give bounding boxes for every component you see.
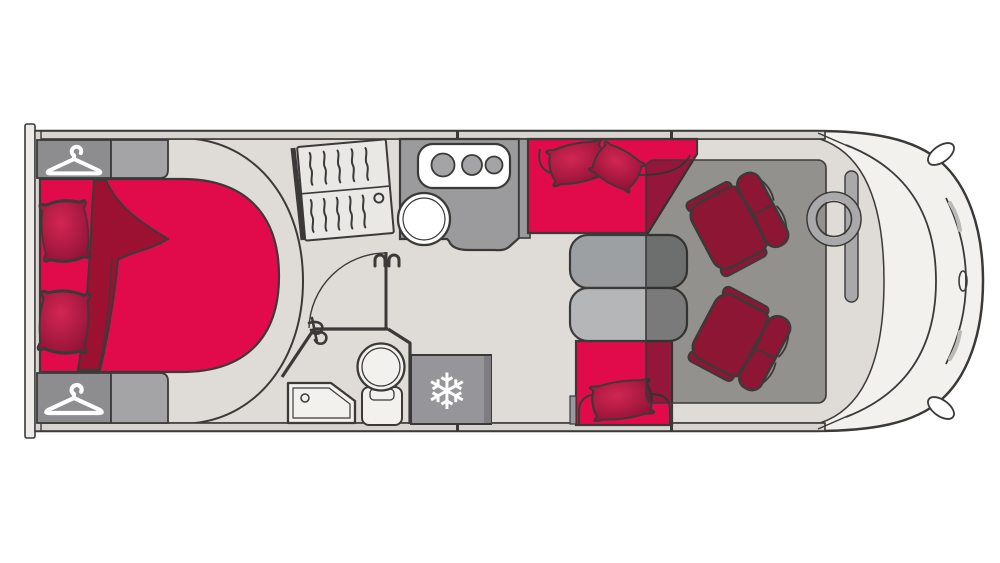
slatted-cabinet (293, 139, 394, 240)
burner-icon (432, 154, 455, 177)
fridge: ❄ (411, 355, 491, 424)
cabinet-bottom (111, 373, 168, 423)
toilet-base (362, 387, 402, 425)
floorplan-page: ❄ (0, 0, 1000, 563)
bed-pillow-2 (37, 289, 90, 354)
bench-end-panel (570, 396, 576, 424)
snowflake-icon: ❄ (426, 363, 468, 421)
floorplan-canvas: ❄ (0, 0, 1000, 563)
rear-panel (25, 124, 35, 438)
burner-icon (462, 155, 482, 175)
fridge-edge (484, 356, 491, 423)
burner-icon (486, 157, 503, 174)
kitchen (398, 139, 530, 250)
wall-top (36, 131, 825, 139)
cabinet-top (111, 140, 168, 178)
kitchen-sink (398, 193, 450, 245)
hob-burners (432, 154, 503, 177)
bed-pillow-1 (39, 199, 91, 263)
toilet-bowl (358, 344, 405, 391)
